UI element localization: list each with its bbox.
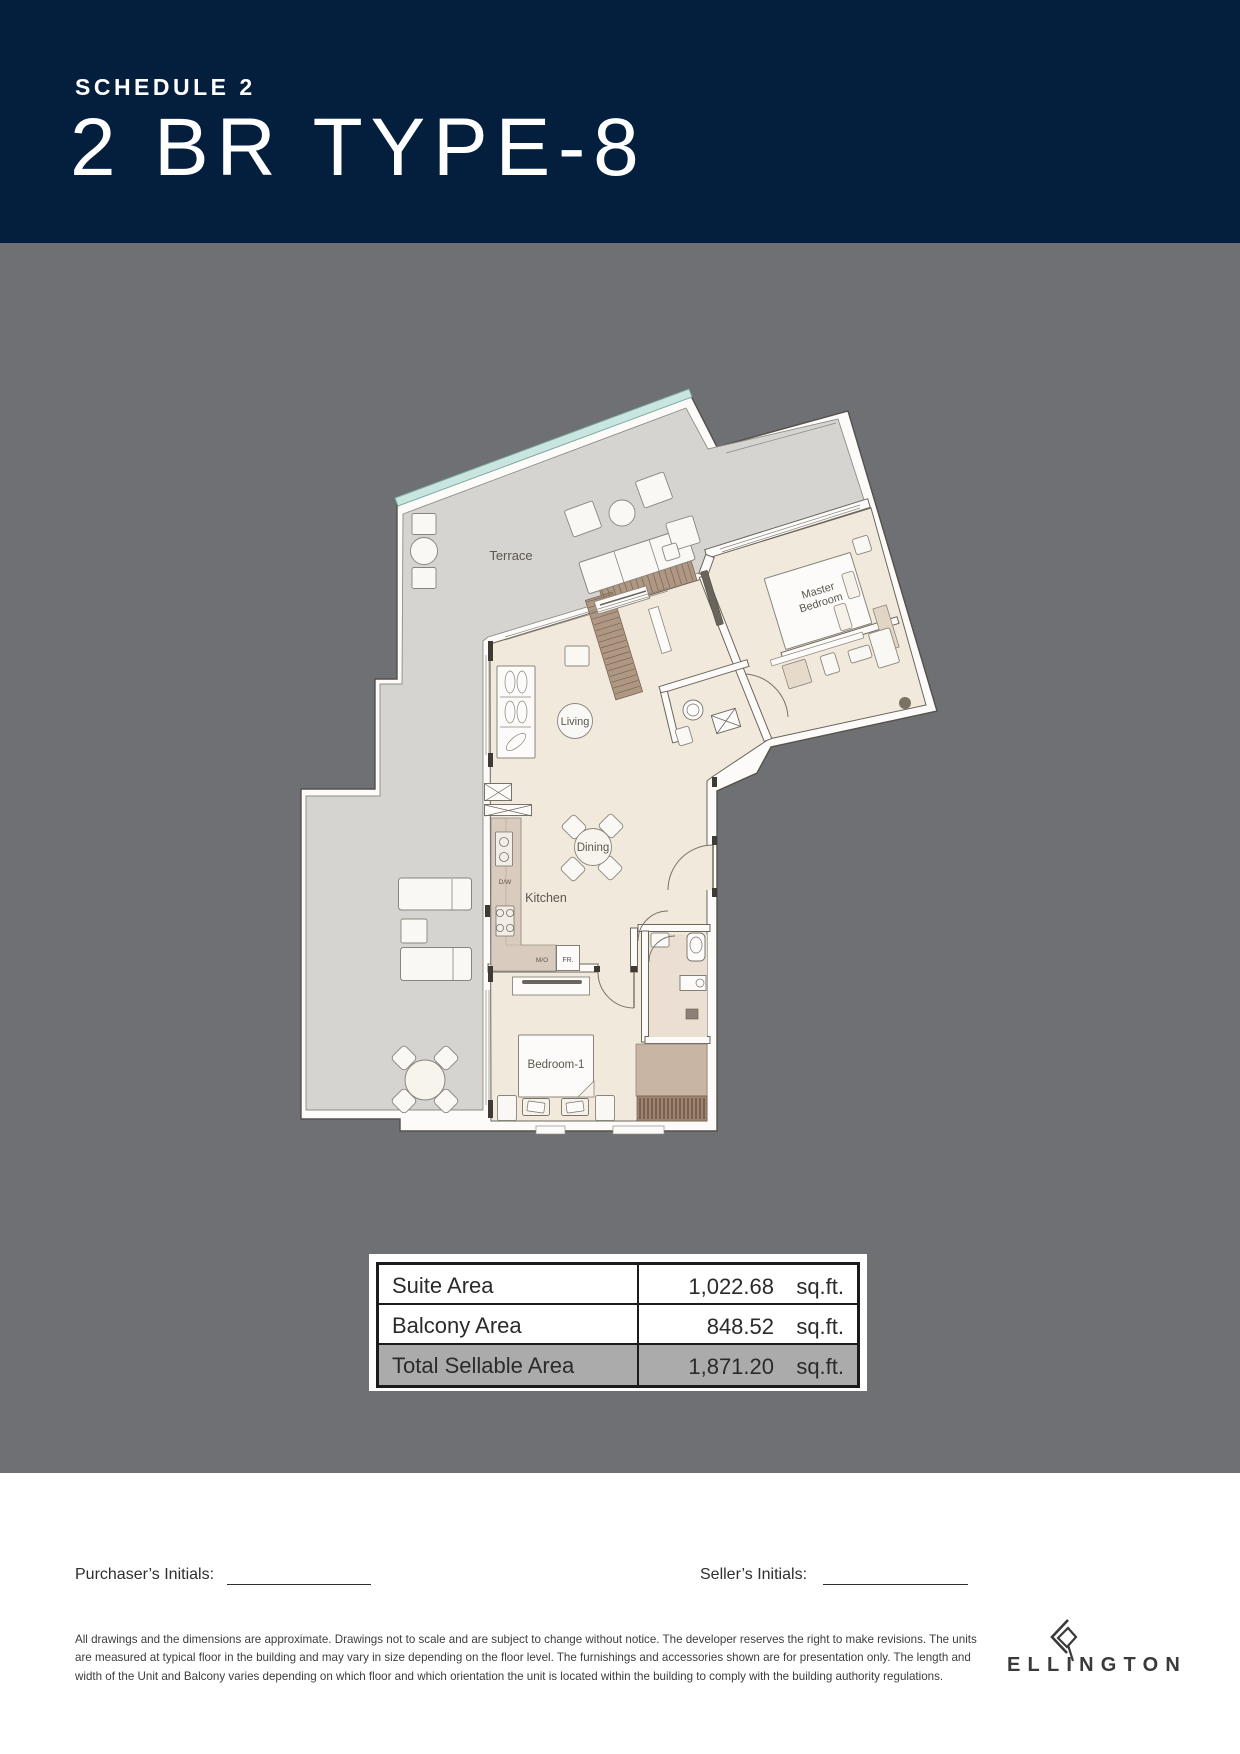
svg-text:Terrace: Terrace xyxy=(489,548,532,563)
svg-text:Kitchen: Kitchen xyxy=(525,891,567,905)
svg-text:Living: Living xyxy=(561,716,590,728)
svg-text:D/W: D/W xyxy=(499,879,513,886)
svg-text:Bedroom-1: Bedroom-1 xyxy=(528,1059,585,1071)
svg-text:Dining: Dining xyxy=(577,842,610,854)
svg-text:FR.: FR. xyxy=(562,957,573,964)
svg-text:M/O: M/O xyxy=(536,957,548,964)
